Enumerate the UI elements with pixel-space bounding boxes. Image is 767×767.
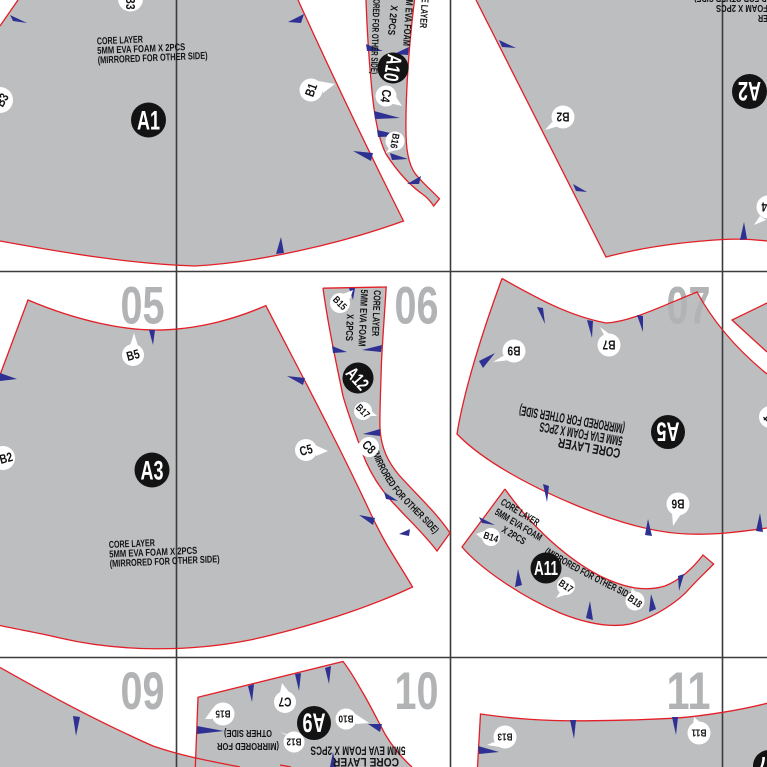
svg-text:A11: A11 xyxy=(534,558,558,580)
svg-text:CORE LAYER: CORE LAYER xyxy=(417,0,431,29)
svg-text:(MIRRORED FOR: (MIRRORED FOR xyxy=(216,740,279,751)
svg-text:11: 11 xyxy=(667,662,711,721)
svg-text:B4: B4 xyxy=(761,200,767,215)
svg-text:A2: A2 xyxy=(738,76,761,106)
svg-text:OTHER SIDE): OTHER SIDE) xyxy=(224,727,272,738)
svg-text:5MM EVA FOAM X 2PCS: 5MM EVA FOAM X 2PCS xyxy=(310,744,405,756)
svg-text:A5: A5 xyxy=(657,417,680,447)
svg-text:X 2PCS: X 2PCS xyxy=(343,314,355,342)
svg-text:CORE LAYER: CORE LAYER xyxy=(369,290,382,337)
svg-text:B12: B12 xyxy=(286,736,301,747)
svg-text:09: 09 xyxy=(121,662,165,721)
svg-text:B15: B15 xyxy=(215,708,230,719)
svg-text:B7: B7 xyxy=(603,338,616,353)
svg-text:B11: B11 xyxy=(691,727,706,738)
svg-text:CORE LAYER: CORE LAYER xyxy=(332,755,399,767)
svg-text:B13: B13 xyxy=(497,731,512,742)
svg-text:06: 06 xyxy=(395,277,439,336)
svg-text:B3: B3 xyxy=(123,0,138,10)
svg-text:(MIRRORED FOR OTHER SIDE): (MIRRORED FOR OTHER SIDE) xyxy=(694,0,767,3)
svg-text:A3: A3 xyxy=(141,456,164,486)
svg-text:B10: B10 xyxy=(338,713,353,724)
svg-text:07: 07 xyxy=(667,277,711,336)
svg-text:A1: A1 xyxy=(137,106,160,136)
svg-text:10: 10 xyxy=(395,662,439,721)
svg-text:A9: A9 xyxy=(303,708,326,738)
svg-text:A7: A7 xyxy=(758,751,767,767)
svg-text:05: 05 xyxy=(121,277,165,336)
svg-text:B6: B6 xyxy=(672,497,685,512)
svg-text:C7: C7 xyxy=(279,695,292,710)
svg-text:A10: A10 xyxy=(378,53,405,84)
svg-text:B2: B2 xyxy=(557,110,570,125)
svg-text:B9: B9 xyxy=(508,344,521,359)
